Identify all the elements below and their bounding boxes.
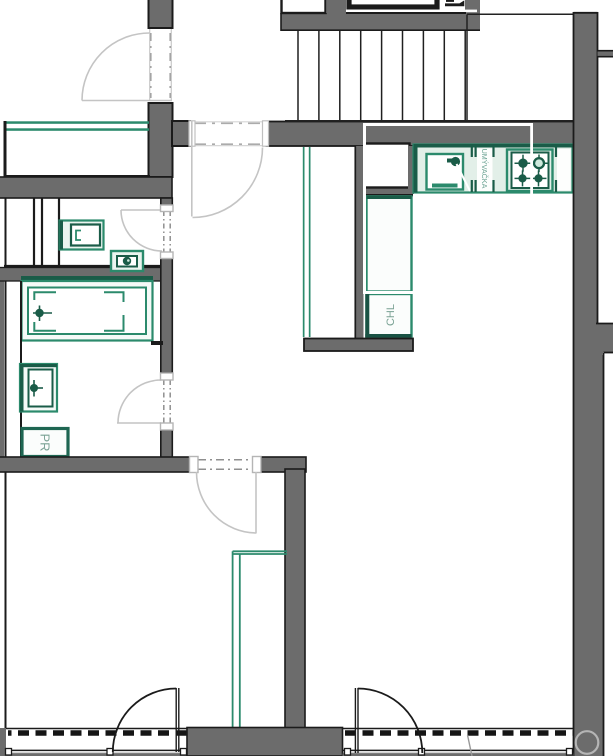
svg-text:PR: PR (38, 433, 53, 451)
svg-text:CHL: CHL (385, 304, 397, 326)
svg-text:UMÝVAČKA: UMÝVAČKA (480, 149, 489, 189)
